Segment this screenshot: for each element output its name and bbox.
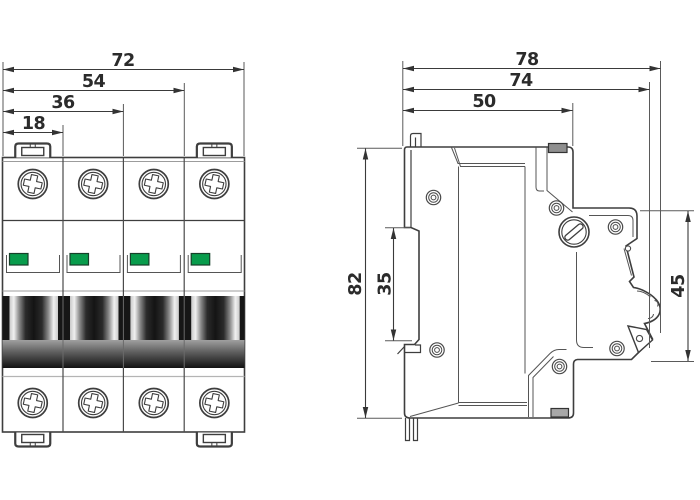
- dim-label-54: 54: [82, 72, 106, 92]
- toggle-base-pin: [636, 335, 642, 341]
- green-indicator: [70, 254, 89, 266]
- side-view: 78 74 50 82 35 45: [346, 50, 694, 441]
- top-vent-tab: [549, 144, 568, 153]
- dim-label-50: 50: [472, 92, 496, 112]
- dim-label-78: 78: [515, 50, 539, 70]
- dim-label-72: 72: [111, 51, 134, 71]
- bottom-mount-tab: [406, 418, 418, 441]
- drawing-canvas: 72 54 36 18: [0, 0, 700, 500]
- green-indicator: [191, 254, 210, 266]
- toggle-handle: [70, 296, 119, 340]
- dim-label-74: 74: [509, 71, 533, 91]
- dim-label-18: 18: [22, 114, 46, 134]
- toggle-handle: [191, 296, 240, 340]
- breaker-side-body: [405, 147, 661, 418]
- slotted-screw: [559, 217, 589, 247]
- toggle-handle: [130, 296, 179, 340]
- toggle-pivot-pin: [625, 246, 630, 251]
- front-view: 72 54 36 18: [3, 51, 245, 447]
- front-view-dimensions: 72 54 36 18: [3, 51, 244, 156]
- dim-label-36: 36: [51, 93, 75, 113]
- dim-label-45: 45: [669, 274, 689, 297]
- top-mount-tab: [411, 134, 422, 148]
- toggle-handle: [10, 296, 59, 340]
- green-indicator: [10, 254, 29, 266]
- bottom-vent-tab: [551, 409, 569, 418]
- dim-label-82: 82: [346, 272, 366, 295]
- dim-label-35: 35: [376, 272, 396, 295]
- technical-drawing: 72 54 36 18: [0, 0, 700, 500]
- green-indicator: [130, 254, 149, 266]
